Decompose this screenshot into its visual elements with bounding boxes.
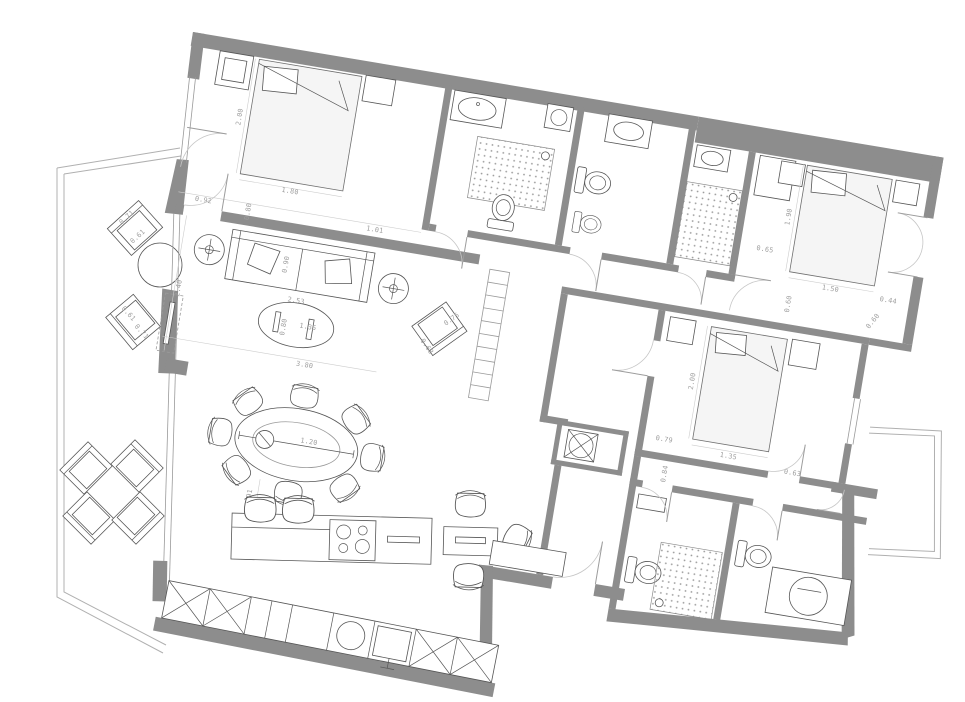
toilet-icon — [734, 540, 773, 571]
bathroom-2 — [558, 110, 652, 295]
floor-plan-page: 0.71 0.61 0.61 0.71 — [0, 0, 965, 702]
lounge-chair — [63, 492, 115, 544]
wall-corridor-left — [539, 293, 567, 422]
wall-entrance — [593, 584, 625, 601]
chair-icon — [453, 563, 484, 590]
bidet-icon — [572, 211, 603, 236]
washstand-icon — [765, 567, 851, 626]
shower-icon — [650, 542, 722, 619]
dim-label: 2.40 — [173, 279, 184, 297]
dim-label: 2.00 — [687, 372, 698, 390]
wall — [428, 224, 436, 232]
bathroom-4 — [728, 505, 861, 626]
chair-icon — [206, 416, 234, 448]
exterior-wall-right — [853, 344, 869, 399]
wall-shaft — [617, 431, 629, 476]
door-arc — [729, 275, 770, 316]
door-leaf — [800, 445, 805, 477]
exterior-wall-right — [838, 443, 852, 484]
vent-fan-icon — [564, 429, 598, 462]
exterior-pier — [185, 32, 206, 80]
shelving-icon — [468, 269, 509, 401]
door-leaf — [612, 370, 648, 376]
wall-bedroom3-bottom — [799, 476, 846, 490]
door-arc — [184, 167, 228, 211]
wall-bath-top — [672, 485, 754, 505]
side-table-icon — [192, 232, 227, 267]
toilet-icon — [574, 166, 613, 197]
dim-label: 0.84 — [659, 465, 670, 483]
side-table-icon — [376, 271, 411, 306]
door-leaf — [187, 127, 226, 134]
wall-bedroom1-bottom — [175, 204, 185, 215]
dim-label: 3.80 — [295, 360, 313, 371]
washbasin-icon — [694, 145, 731, 172]
wall-bedroom3-left — [653, 310, 665, 342]
lounge-chair — [111, 440, 163, 492]
wall-shaft — [551, 420, 563, 465]
bathroom-3 — [620, 487, 730, 620]
floor-plan-canvas: 0.71 0.61 0.61 0.71 — [0, 0, 965, 702]
nightstand-icon — [778, 161, 805, 187]
dim-label: 0.65 — [756, 244, 774, 255]
door-leaf — [222, 174, 228, 211]
living-room: 2.40 3.80 0.90 2.53 1.35 0.80 0.75 0.68 — [156, 214, 510, 406]
nightstand-icon — [667, 317, 697, 345]
door-arc — [893, 213, 928, 248]
wall-bedroom1-right — [422, 84, 453, 230]
dim-label: 1.50 — [821, 283, 839, 294]
chair-icon — [455, 490, 486, 517]
nightstand-icon — [362, 75, 396, 106]
door-arc — [748, 506, 783, 541]
dim-label: 1.90 — [783, 208, 794, 226]
door-arc — [888, 242, 923, 277]
nightstand-icon — [893, 180, 920, 206]
armchair-icon — [412, 302, 467, 356]
kitchen-counter-run — [153, 579, 503, 697]
shower-room — [667, 144, 748, 308]
bed-icon — [693, 327, 788, 452]
door-leaf — [596, 259, 601, 291]
wall-bath-top — [782, 504, 867, 525]
hob-icon — [329, 520, 376, 561]
door-leaf — [735, 275, 771, 281]
wall-bedroom3-bottom — [634, 449, 768, 478]
wall — [467, 230, 571, 254]
utility-shaft — [564, 429, 598, 462]
exterior-wall-right — [902, 276, 923, 345]
door-leaf — [888, 272, 918, 277]
door-leaf — [777, 511, 782, 541]
stool-icon — [244, 494, 277, 522]
dim-label: 1.80 — [281, 186, 299, 197]
wall-shaft — [551, 459, 623, 476]
coffee-table-icon — [255, 297, 337, 353]
door-leaf — [898, 213, 928, 218]
window — [853, 399, 861, 444]
door-leaf — [667, 492, 672, 522]
window — [175, 76, 194, 162]
dim-label: 1.01 — [366, 224, 384, 235]
bed-icon — [240, 59, 362, 191]
dim-label: 2.00 — [234, 108, 245, 126]
window — [847, 398, 855, 443]
dim-label: 1.35 — [719, 451, 737, 462]
chair-icon — [359, 442, 387, 474]
dim-label: 0.79 — [655, 434, 673, 445]
dim-label: 0.60 — [864, 312, 881, 330]
wall-bath-left — [609, 456, 641, 610]
counter-slat — [387, 536, 419, 543]
boiler-icon — [544, 104, 574, 132]
terrace-armchair-bottom — [106, 294, 161, 349]
lounge-chair — [60, 442, 112, 494]
nightstand-icon — [788, 339, 820, 369]
door-arc — [564, 254, 601, 291]
chair-icon — [289, 382, 321, 410]
door-leaf — [595, 542, 602, 584]
door-leaf — [701, 277, 706, 305]
wall-bedroom3-left — [634, 376, 654, 457]
door-arc — [673, 272, 705, 304]
dim-label: 0.60 — [783, 295, 794, 313]
bed-icon — [790, 165, 893, 286]
building: 2.00 1.80 0.92 0.80 1.01 — [93, 32, 965, 702]
bedroom-3: 2.00 1.35 0.79 0.84 0.63 — [595, 309, 823, 505]
window — [181, 77, 200, 163]
nightstand-icon — [215, 51, 254, 90]
stool-icon — [282, 495, 315, 523]
bedroom-2: 1.90 1.50 0.65 0.44 0.60 0.60 — [729, 155, 933, 341]
door-arc — [612, 334, 653, 375]
shelf-icon — [637, 494, 667, 512]
dim-label: 0.44 — [879, 295, 897, 306]
lounge-chair — [112, 492, 164, 544]
